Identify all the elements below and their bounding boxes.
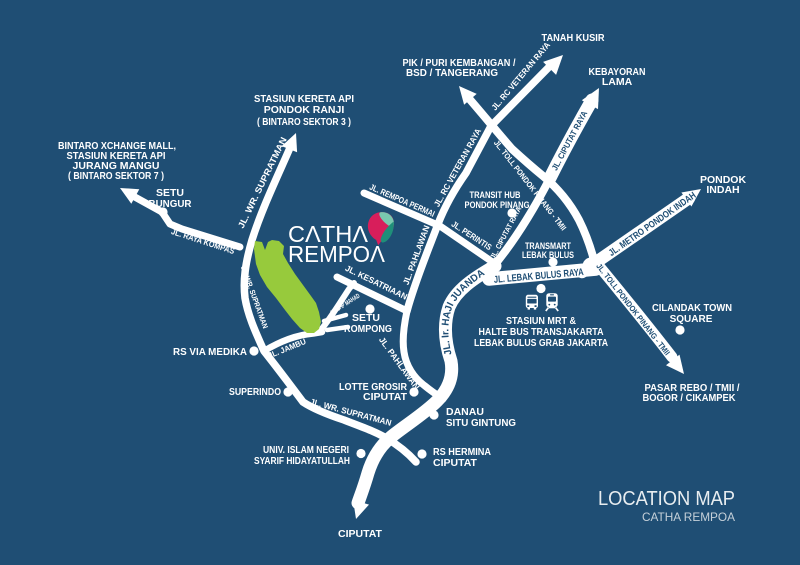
- svg-text:BSD / TANGERANG: BSD / TANGERANG: [406, 67, 498, 79]
- svg-text:PONDOK RANJI: PONDOK RANJI: [264, 104, 345, 116]
- svg-text:LOCATION MAP: LOCATION MAP: [598, 488, 735, 510]
- svg-text:CIPUTAT: CIPUTAT: [338, 528, 383, 540]
- svg-text:LEBAK BULUS GRAB JAKARTA: LEBAK BULUS GRAB JAKARTA: [474, 338, 608, 349]
- svg-text:STASIUN MRT &: STASIUN MRT &: [506, 316, 576, 327]
- svg-text:RS VIA MEDIKA: RS VIA MEDIKA: [173, 346, 247, 358]
- svg-text:ROMPONG: ROMPONG: [344, 323, 392, 335]
- svg-text:SITU GINTUNG: SITU GINTUNG: [446, 417, 516, 429]
- svg-text:TANAH KUSIR: TANAH KUSIR: [542, 32, 605, 44]
- svg-text:LEBAK BULUS: LEBAK BULUS: [522, 250, 574, 261]
- svg-text:SUPERINDO: SUPERINDO: [229, 386, 281, 398]
- svg-text:LAMA: LAMA: [602, 76, 633, 88]
- svg-text:REMPOΛ: REMPOΛ: [288, 241, 386, 267]
- svg-text:BUNGUR: BUNGUR: [149, 198, 192, 210]
- svg-text:HALTE BUS TRANSJAKARTA: HALTE BUS TRANSJAKARTA: [479, 327, 604, 338]
- svg-text:( BINTARO SEKTOR 7 ): ( BINTARO SEKTOR 7 ): [68, 170, 164, 182]
- svg-text:BOGOR / CIKAMPEK: BOGOR / CIKAMPEK: [643, 392, 736, 404]
- svg-text:CILANDAK TOWN: CILANDAK TOWN: [652, 303, 732, 314]
- svg-text:CATHA REMPOA: CATHA REMPOA: [642, 510, 735, 524]
- svg-text:INDAH: INDAH: [706, 184, 739, 196]
- svg-text:CIPUTAT: CIPUTAT: [433, 457, 478, 469]
- svg-text:SQUARE: SQUARE: [670, 314, 713, 325]
- svg-text:CIPUTAT: CIPUTAT: [363, 391, 408, 403]
- svg-text:( BINTARO SEKTOR 3 ): ( BINTARO SEKTOR 3 ): [257, 116, 351, 128]
- svg-text:SYARIF HIDAYATULLAH: SYARIF HIDAYATULLAH: [254, 455, 350, 467]
